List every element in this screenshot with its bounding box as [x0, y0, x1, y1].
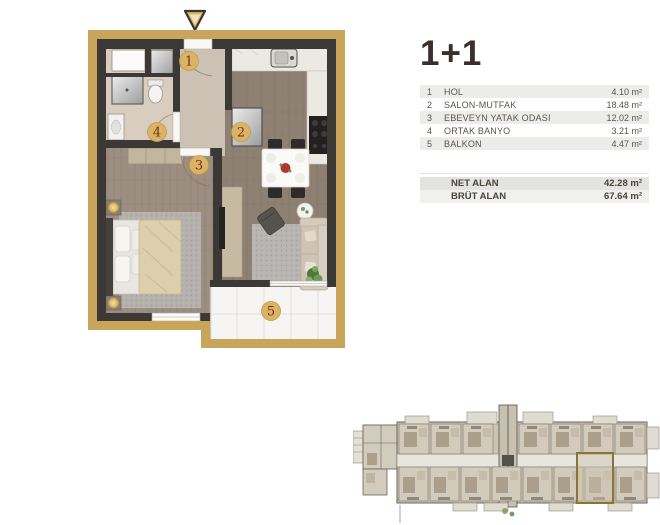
room-number: 4: [420, 126, 444, 136]
bed: [106, 218, 181, 296]
net-area-label: NET ALAN: [420, 178, 604, 189]
room-name: EBEVEYN YATAK ODASI: [444, 113, 606, 123]
room-area: 18.48 m²: [606, 100, 649, 110]
washing-machine: [112, 50, 145, 71]
room-number: 3: [420, 113, 444, 123]
bedroom-window: [152, 313, 200, 321]
room-marker-5: 5: [262, 302, 281, 321]
gross-area-row: BRÜT ALAN 67.64 m²: [420, 190, 649, 203]
net-area-row: NET ALAN 42.28 m²: [420, 177, 649, 190]
room-area: 12.02 m²: [606, 113, 649, 123]
room-row: 3 EBEVEYN YATAK ODASI 12.02 m²: [420, 111, 649, 124]
svg-text:3: 3: [195, 159, 203, 174]
room-marker-2: 2: [232, 123, 251, 142]
nightstand: [106, 200, 121, 215]
area-totals: NET ALAN 42.28 m² BRÜT ALAN 67.64 m²: [420, 173, 649, 203]
room-marker-1: 1: [180, 52, 199, 71]
room-number: 2: [420, 100, 444, 110]
side-table: [297, 203, 313, 219]
svg-text:5: 5: [267, 305, 275, 320]
shower: [112, 76, 143, 104]
room-area: 4.47 m²: [611, 139, 649, 149]
building-key-plan: [353, 397, 660, 525]
stove-icon: [309, 116, 330, 154]
room-area: 4.10 m²: [611, 87, 649, 97]
svg-text:4: 4: [153, 126, 161, 141]
room-area: 3.21 m²: [611, 126, 649, 136]
room-marker-4: 4: [148, 123, 167, 142]
tv-icon: [219, 207, 225, 249]
info-panel: 1+1 1 HOL 4.10 m² 2 SALON-MUTFAK 18.48 m…: [420, 36, 649, 203]
nightstand: [106, 296, 121, 310]
room-row: 4 ORTAK BANYO 3.21 m²: [420, 124, 649, 137]
highlighted-unit: [577, 453, 613, 503]
room-name: BALKON: [444, 139, 611, 149]
wardrobe: [128, 148, 183, 164]
net-area-value: 42.28 m²: [604, 178, 649, 189]
svg-text:2: 2: [237, 126, 245, 141]
room-row: 2 SALON-MUTFAK 18.48 m²: [420, 98, 649, 111]
entrance-arrow-icon: [185, 11, 205, 30]
bathroom-sink-icon: [108, 114, 124, 140]
svg-text:1: 1: [185, 55, 193, 70]
plan-type-title: 1+1: [420, 36, 649, 71]
room-number: 1: [420, 87, 444, 97]
room-list: 1 HOL 4.10 m² 2 SALON-MUTFAK 18.48 m² 3 …: [420, 85, 649, 150]
room-row: 5 BALKON 4.47 m²: [420, 137, 649, 150]
room-name: SALON-MUTFAK: [444, 100, 606, 110]
apartment-floorplan: 1 2 3 4 5: [75, 4, 375, 356]
room-row: 1 HOL 4.10 m²: [420, 85, 649, 98]
kitchen-sink: [271, 49, 297, 67]
balcony-sliding-door: [270, 281, 327, 286]
gross-area-value: 67.64 m²: [604, 191, 649, 202]
room-name: HOL: [444, 87, 611, 97]
room-number: 5: [420, 139, 444, 149]
gross-area-label: BRÜT ALAN: [420, 191, 604, 202]
toilet-icon: [148, 80, 163, 103]
room-name: ORTAK BANYO: [444, 126, 611, 136]
room-marker-3: 3: [190, 156, 209, 175]
utility-unit: [151, 50, 173, 75]
brochure-page: 1 2 3 4 5 1+1 1 HOL 4.10 m² 2: [0, 0, 660, 525]
